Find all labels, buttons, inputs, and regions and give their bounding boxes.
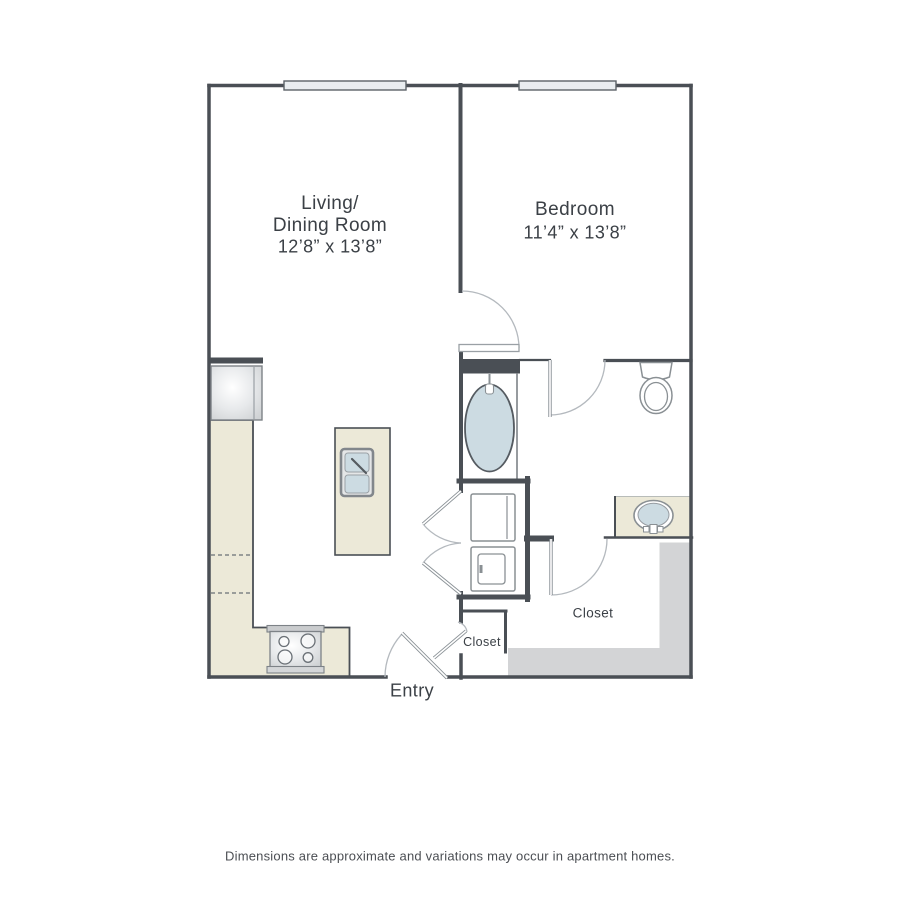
interior-walls	[209, 85, 692, 678]
walk-in-closet-door	[551, 539, 607, 595]
stove-range	[267, 626, 324, 674]
entry-closet-door	[434, 622, 467, 658]
faucet-spout	[650, 525, 657, 534]
living-dining-label-line1: Living/	[301, 193, 359, 215]
hall-bath-wall	[459, 359, 520, 374]
disclaimer-text: Dimensions are approximate and variation…	[225, 849, 675, 864]
faucet-handle	[644, 527, 650, 533]
refrigerator	[211, 366, 262, 420]
bedroom-dimensions: 11’4” x 13’8”	[524, 223, 627, 244]
entry-label: Entry	[390, 681, 434, 702]
kitchen-wall-stub	[209, 358, 263, 364]
bathroom-door	[550, 360, 605, 417]
door-leaf	[423, 563, 461, 594]
bedroom-label: Bedroom	[535, 199, 615, 221]
toilet	[640, 363, 672, 414]
kitchen-sink	[341, 449, 373, 496]
bedroom-window	[519, 81, 616, 90]
entry-closet-label: Closet	[463, 635, 501, 649]
dryer-handle	[480, 565, 483, 573]
walk-in-closet-label: Closet	[573, 606, 614, 621]
exterior-walls	[209, 86, 691, 678]
floorplan-drawing	[0, 0, 900, 900]
hall-door	[459, 291, 519, 352]
bathtub	[465, 374, 514, 472]
living-dining-dimensions: 12’8” x 13’8”	[278, 237, 382, 258]
living-room-window	[284, 81, 406, 90]
door-leaf	[423, 491, 461, 524]
stacked-washer	[471, 494, 515, 541]
stacked-dryer	[471, 547, 515, 591]
door-leaf	[459, 345, 519, 352]
laundry-double-doors	[423, 491, 461, 594]
faucet-handle	[658, 527, 664, 533]
living-dining-label-line2: Dining Room	[273, 215, 387, 237]
door-leaf	[402, 633, 447, 678]
floorplan-page: Living/ Dining Room 12’8” x 13’8” Bedroo…	[0, 0, 900, 900]
